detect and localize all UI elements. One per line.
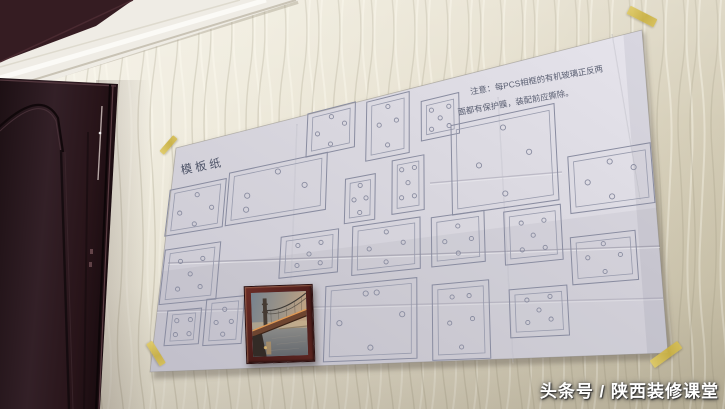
bridge-photo-art [251, 291, 308, 357]
watermark-text: 头条号 / 陕西装修课堂 [540, 377, 719, 402]
template-paper-sheet: 模板纸 注意：每PCS相框的有机玻璃正反两 面都有保护膜，装配前应撕除。 [0, 0, 725, 409]
framed-bridge-photo [244, 284, 316, 364]
room-photo-scene: 模板纸 注意：每PCS相框的有机玻璃正反两 面都有保护膜，装配前应撕除。 [0, 0, 725, 409]
photo-warm-reflection [266, 342, 271, 355]
bridge-photo-image [251, 291, 308, 357]
